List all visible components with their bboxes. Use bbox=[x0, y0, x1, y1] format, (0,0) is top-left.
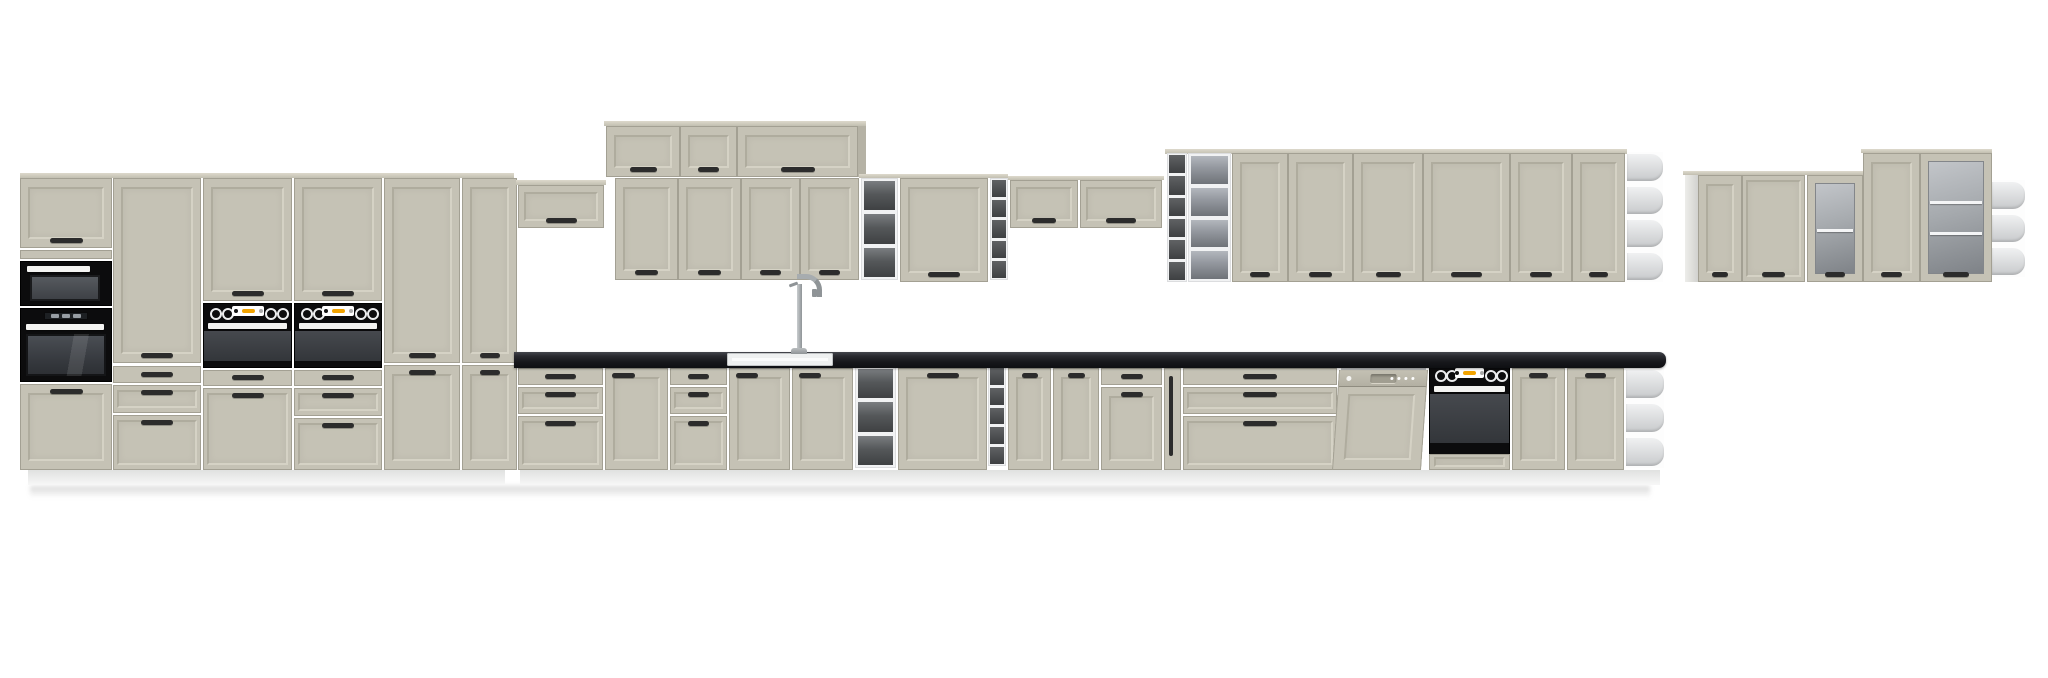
door-handle bbox=[322, 291, 354, 296]
tall-wall-glass-cabinet bbox=[1920, 153, 1992, 282]
top-row-side-panel bbox=[858, 126, 866, 177]
shelf-compartment bbox=[858, 369, 893, 398]
door-handle bbox=[1106, 218, 1136, 223]
door-panel bbox=[906, 377, 979, 461]
door-panel bbox=[908, 187, 980, 273]
shelf-compartment bbox=[992, 261, 1006, 278]
microwave-handle bbox=[27, 266, 90, 272]
tall-cabinet-upper-door bbox=[384, 178, 460, 363]
door-panel bbox=[688, 135, 729, 168]
wall-wine-rack bbox=[990, 178, 1008, 280]
wall-cabinet-door bbox=[741, 178, 800, 280]
wall-cabinet-door bbox=[615, 178, 678, 280]
shelf-compartment bbox=[864, 214, 895, 243]
shelf-compartment bbox=[992, 241, 1006, 258]
shelf-compartment bbox=[1191, 251, 1228, 279]
door-handle bbox=[1825, 272, 1845, 277]
oven-display bbox=[1455, 368, 1484, 378]
door-handle bbox=[480, 353, 500, 358]
microwave-window bbox=[30, 275, 100, 301]
wall-cabinet-slab-door bbox=[1742, 175, 1805, 282]
door-panel bbox=[392, 187, 452, 354]
shelf-compartment bbox=[1626, 438, 1664, 466]
shelf-compartment bbox=[1992, 248, 2025, 275]
door-handle bbox=[928, 272, 960, 277]
sink-faucet bbox=[788, 274, 824, 354]
shelf-compartment bbox=[1191, 220, 1228, 248]
oven-knob bbox=[1496, 370, 1508, 382]
wall-cabinet-door bbox=[1510, 153, 1572, 282]
tall-cabinet-upper-door bbox=[462, 178, 517, 363]
pullout-handle bbox=[1169, 376, 1173, 456]
shelf-compartment bbox=[864, 181, 895, 210]
door-handle bbox=[50, 389, 83, 394]
tall-larder-door bbox=[113, 178, 201, 363]
shelf-compartment bbox=[990, 447, 1004, 464]
door-handle bbox=[545, 374, 576, 379]
door-handle bbox=[1530, 272, 1552, 277]
base-open-shelf bbox=[855, 366, 896, 468]
oven-door bbox=[1430, 394, 1509, 443]
door-handle bbox=[141, 420, 173, 425]
oven-display bbox=[322, 306, 354, 316]
shelf-compartment bbox=[990, 427, 1004, 444]
door-handle bbox=[1022, 373, 1038, 378]
door-panel bbox=[1575, 377, 1616, 461]
door-handle bbox=[1243, 421, 1277, 426]
drawer-front bbox=[294, 388, 382, 416]
door-panel bbox=[614, 135, 672, 168]
shelf-compartment bbox=[1169, 198, 1185, 216]
oven-tower-upper-door bbox=[203, 178, 292, 301]
door-panel bbox=[522, 421, 599, 465]
oven-tower-upper-door bbox=[20, 178, 112, 248]
door-handle bbox=[322, 375, 354, 380]
shelf-compartment bbox=[1627, 187, 1663, 214]
floor-shadow bbox=[30, 486, 1650, 498]
door-handle bbox=[799, 373, 821, 378]
oven-base-drawer bbox=[1429, 454, 1510, 470]
shelf-compartment bbox=[1627, 154, 1663, 181]
shelf-compartment bbox=[1169, 219, 1185, 237]
door-handle bbox=[1309, 272, 1332, 277]
worktop bbox=[514, 352, 1666, 368]
door-handle bbox=[1032, 218, 1056, 223]
wall-cabinet-door bbox=[1288, 153, 1353, 282]
over-counter-wall-box bbox=[518, 185, 604, 228]
oven-knob bbox=[210, 308, 222, 320]
door-panel bbox=[1361, 162, 1415, 273]
door-panel bbox=[1580, 162, 1617, 273]
faucet-spout bbox=[797, 274, 822, 297]
door-handle bbox=[1762, 272, 1785, 277]
base-cabinet-door bbox=[1101, 387, 1162, 470]
door-panel bbox=[1109, 396, 1154, 461]
base-drawer-front bbox=[670, 368, 727, 385]
door-handle bbox=[1451, 272, 1482, 277]
oven-handle bbox=[208, 323, 287, 329]
door-panel bbox=[613, 377, 660, 461]
built-in-single-oven bbox=[20, 308, 112, 382]
door-panel bbox=[686, 187, 733, 271]
door-panel bbox=[207, 393, 288, 465]
door-handle bbox=[1589, 272, 1608, 277]
wall-cabinet-door bbox=[678, 178, 741, 280]
wall-shelf-column bbox=[1188, 153, 1231, 282]
base-drawer-front bbox=[1183, 368, 1337, 385]
inset-sink bbox=[727, 353, 833, 366]
wall-cabinet-door bbox=[900, 178, 988, 282]
short-wall-cabinet bbox=[1080, 180, 1162, 228]
door-panel bbox=[117, 420, 197, 465]
door-handle bbox=[232, 393, 264, 398]
door-handle bbox=[1881, 272, 1902, 277]
oven-handle bbox=[26, 324, 104, 330]
top-row-wall-cabinet-wide bbox=[737, 126, 858, 177]
oven-door bbox=[295, 331, 381, 361]
door-handle bbox=[698, 167, 719, 172]
wall-cabinet-door bbox=[1353, 153, 1423, 282]
drawer-panel bbox=[1434, 457, 1505, 467]
door-handle bbox=[688, 421, 709, 426]
door-handle bbox=[141, 390, 173, 395]
door-panel bbox=[1746, 180, 1801, 277]
door-handle bbox=[50, 238, 83, 243]
door-handle bbox=[141, 353, 173, 358]
door-panel bbox=[298, 423, 378, 465]
door-handle bbox=[1243, 374, 1277, 379]
door-handle bbox=[635, 270, 658, 275]
base-drawer-front bbox=[1183, 387, 1337, 414]
door-handle bbox=[1943, 272, 1969, 277]
tall-cabinet-lower-door bbox=[462, 365, 517, 470]
shelf-compartment bbox=[1626, 370, 1664, 398]
door-panel bbox=[749, 187, 792, 271]
oven-knob bbox=[355, 308, 367, 320]
shelf-compartment bbox=[990, 368, 1004, 385]
plinth-base-run bbox=[520, 470, 1660, 485]
door-handle bbox=[232, 291, 264, 296]
shelf-compartment bbox=[864, 248, 895, 277]
built-in-microwave bbox=[20, 261, 112, 306]
base-drawer-front bbox=[518, 368, 603, 385]
door-handle bbox=[927, 373, 959, 378]
base-cabinet-door bbox=[1053, 368, 1099, 470]
wall-cabinet-door bbox=[1698, 175, 1742, 282]
oven-handle bbox=[1434, 386, 1505, 392]
base-drawer-front bbox=[670, 416, 727, 470]
door-panel bbox=[1706, 184, 1734, 273]
shelf-compartment bbox=[1992, 182, 2025, 209]
door-panel bbox=[28, 187, 104, 239]
shelf-compartment bbox=[992, 180, 1006, 197]
shelf-compartment bbox=[1191, 156, 1228, 184]
glass-shelf bbox=[1817, 229, 1853, 232]
door-panel bbox=[1520, 377, 1557, 461]
shelf-compartment bbox=[1626, 404, 1664, 432]
door-handle bbox=[698, 270, 721, 275]
door-panel bbox=[674, 421, 723, 465]
wall-cabinet-door bbox=[1572, 153, 1625, 282]
oven-knob bbox=[301, 308, 313, 320]
oven-display bbox=[232, 306, 264, 316]
door-handle bbox=[545, 392, 576, 397]
base-drawer-front bbox=[518, 416, 603, 470]
shelf-compartment bbox=[992, 220, 1006, 237]
door-handle bbox=[1121, 392, 1143, 397]
door-panel bbox=[737, 377, 782, 461]
dishwasher-door-panel bbox=[1344, 394, 1416, 460]
top-row-wall-cabinet bbox=[606, 126, 680, 177]
door-handle bbox=[1712, 272, 1728, 277]
plinth-tall-run bbox=[28, 470, 505, 485]
door-panel bbox=[623, 187, 670, 271]
drawer-front bbox=[294, 418, 382, 470]
door-handle bbox=[688, 392, 709, 397]
dishwasher bbox=[1339, 363, 1428, 470]
shelf-compartment bbox=[990, 388, 1004, 405]
door-handle bbox=[1529, 373, 1548, 378]
door-handle bbox=[546, 218, 577, 223]
door-handle bbox=[232, 375, 264, 380]
glass-panel bbox=[1815, 183, 1855, 274]
door-handle bbox=[612, 373, 635, 378]
wall-glass-door-cabinet bbox=[1807, 175, 1863, 282]
oven-tower-lower-door bbox=[20, 384, 112, 470]
door-panel bbox=[470, 187, 509, 354]
base-cabinet-door bbox=[1008, 368, 1051, 470]
shelf-compartment bbox=[1169, 262, 1185, 280]
door-handle bbox=[141, 372, 173, 377]
base-drawer-front bbox=[518, 387, 603, 414]
door-handle bbox=[409, 370, 436, 375]
drawer-front bbox=[294, 370, 382, 386]
tall-cabinet-lower-door bbox=[384, 365, 460, 470]
drawer-front bbox=[113, 385, 201, 413]
door-handle bbox=[322, 423, 354, 428]
shelf-compartment bbox=[1169, 176, 1185, 194]
shelf-compartment bbox=[990, 408, 1004, 425]
door-panel bbox=[1016, 377, 1043, 461]
shelf-compartment bbox=[1169, 155, 1185, 173]
door-handle bbox=[322, 393, 354, 398]
door-panel bbox=[800, 377, 845, 461]
glass-shelf bbox=[1930, 201, 1982, 204]
built-in-oven bbox=[294, 303, 382, 368]
kitchen-cabinet-set-render bbox=[0, 0, 2048, 678]
wall-end-open-shelf bbox=[1992, 180, 2025, 277]
door-panel bbox=[745, 135, 850, 168]
door-panel bbox=[1431, 162, 1502, 273]
wall-cabinet-door bbox=[800, 178, 859, 280]
shelf-compartment bbox=[992, 200, 1006, 217]
base-cabinet-door bbox=[605, 368, 668, 470]
oven-knob bbox=[367, 308, 379, 320]
door-handle bbox=[688, 374, 709, 379]
door-handle bbox=[1068, 373, 1085, 378]
door-panel bbox=[1086, 187, 1156, 221]
wall-open-shelf bbox=[861, 178, 898, 280]
drawer-front bbox=[113, 366, 201, 383]
door-handle bbox=[409, 353, 436, 358]
door-panel bbox=[1187, 421, 1333, 465]
door-panel bbox=[1518, 162, 1564, 273]
door-handle bbox=[760, 270, 781, 275]
wall-wine-rack bbox=[1167, 153, 1187, 282]
door-panel bbox=[28, 393, 104, 461]
built-in-oven bbox=[203, 303, 292, 368]
wall-end-open-shelf bbox=[1627, 152, 1663, 282]
door-handle bbox=[480, 370, 500, 375]
base-pullout-unit bbox=[1164, 368, 1181, 470]
tall-wall-cabinet-door bbox=[1863, 153, 1920, 282]
door-panel bbox=[808, 187, 851, 271]
door-panel bbox=[392, 374, 452, 461]
shelf-compartment bbox=[858, 436, 893, 465]
drawer-front bbox=[203, 388, 292, 470]
base-drawer-front bbox=[1183, 416, 1337, 470]
shelf-compartment bbox=[1169, 240, 1185, 258]
wall-cabinet-door bbox=[1232, 153, 1288, 282]
oven-handle bbox=[299, 323, 377, 329]
door-panel bbox=[470, 374, 509, 461]
faucet-tip bbox=[812, 289, 817, 297]
oven-display bbox=[44, 312, 88, 320]
shelf-compartment bbox=[1627, 253, 1663, 280]
base-cabinet-door bbox=[1512, 368, 1565, 470]
door-panel bbox=[524, 192, 598, 221]
door-handle bbox=[1243, 392, 1277, 397]
door-panel bbox=[211, 187, 284, 292]
wall-cabinet-door bbox=[1423, 153, 1510, 282]
oven-knob bbox=[277, 308, 289, 320]
base-drawer-front bbox=[1101, 368, 1162, 385]
door-handle bbox=[1376, 272, 1401, 277]
oven-knob bbox=[265, 308, 277, 320]
shelf-compartment bbox=[1992, 215, 2025, 242]
door-panel bbox=[1061, 377, 1091, 461]
oven-window bbox=[26, 334, 106, 376]
door-panel bbox=[121, 187, 193, 354]
door-panel bbox=[1016, 187, 1072, 221]
top-row-wall-cabinet bbox=[680, 126, 737, 177]
sink-base-door bbox=[729, 368, 790, 470]
drawer-front bbox=[203, 370, 292, 386]
oven-door bbox=[204, 331, 291, 361]
door-panel bbox=[1296, 162, 1345, 273]
glass-shelf bbox=[1930, 232, 1982, 235]
door-handle bbox=[781, 167, 815, 172]
base-drawer-front bbox=[670, 387, 727, 414]
dishwasher-panel bbox=[1332, 370, 1428, 470]
door-handle bbox=[1585, 373, 1606, 378]
glass-panel bbox=[1928, 161, 1984, 274]
faucet-base bbox=[791, 348, 807, 354]
drawer-front bbox=[113, 415, 201, 470]
oven-tower-filler bbox=[20, 250, 112, 259]
door-handle bbox=[1250, 272, 1270, 277]
door-handle bbox=[630, 167, 657, 172]
base-cabinet-door bbox=[898, 368, 987, 470]
base-cabinet-door bbox=[1567, 368, 1624, 470]
wall-cabinet-side-panel bbox=[1685, 175, 1698, 282]
sink-base-door bbox=[792, 368, 853, 470]
shelf-compartment bbox=[858, 402, 893, 431]
door-handle bbox=[1121, 374, 1143, 379]
shelf-compartment bbox=[1627, 220, 1663, 247]
door-panel bbox=[302, 187, 374, 292]
base-wine-rack bbox=[988, 366, 1006, 466]
door-handle bbox=[736, 373, 758, 378]
door-handle bbox=[545, 421, 576, 426]
door-panel bbox=[1240, 162, 1280, 273]
oven-tower-upper-door bbox=[294, 178, 382, 301]
base-end-open-shelf bbox=[1626, 368, 1664, 468]
shelf-compartment bbox=[1191, 188, 1228, 216]
short-wall-cabinet bbox=[1010, 180, 1078, 228]
door-panel bbox=[1871, 162, 1912, 273]
built-under-oven bbox=[1429, 365, 1510, 470]
